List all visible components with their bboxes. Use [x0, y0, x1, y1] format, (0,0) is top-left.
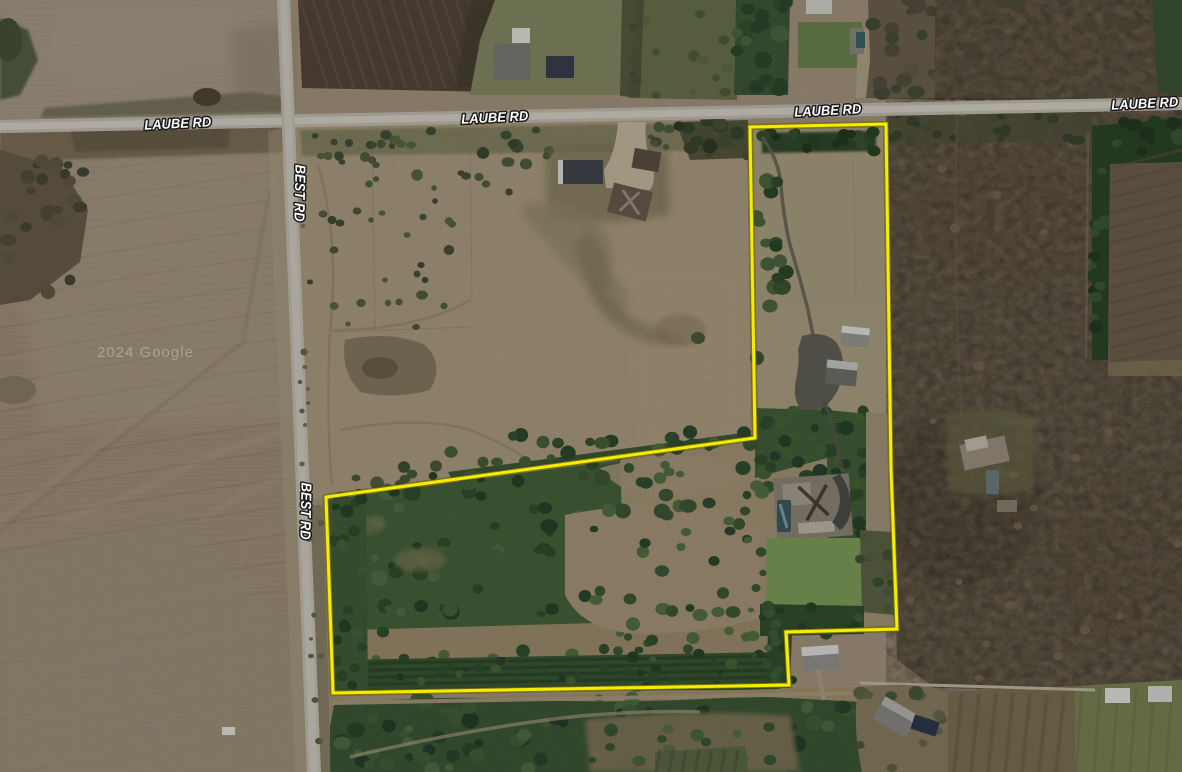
svg-text:BEST RD: BEST RD — [296, 482, 313, 540]
svg-text:BEST RD: BEST RD — [290, 164, 307, 222]
svg-text:2024 Google: 2024 Google — [97, 344, 194, 361]
